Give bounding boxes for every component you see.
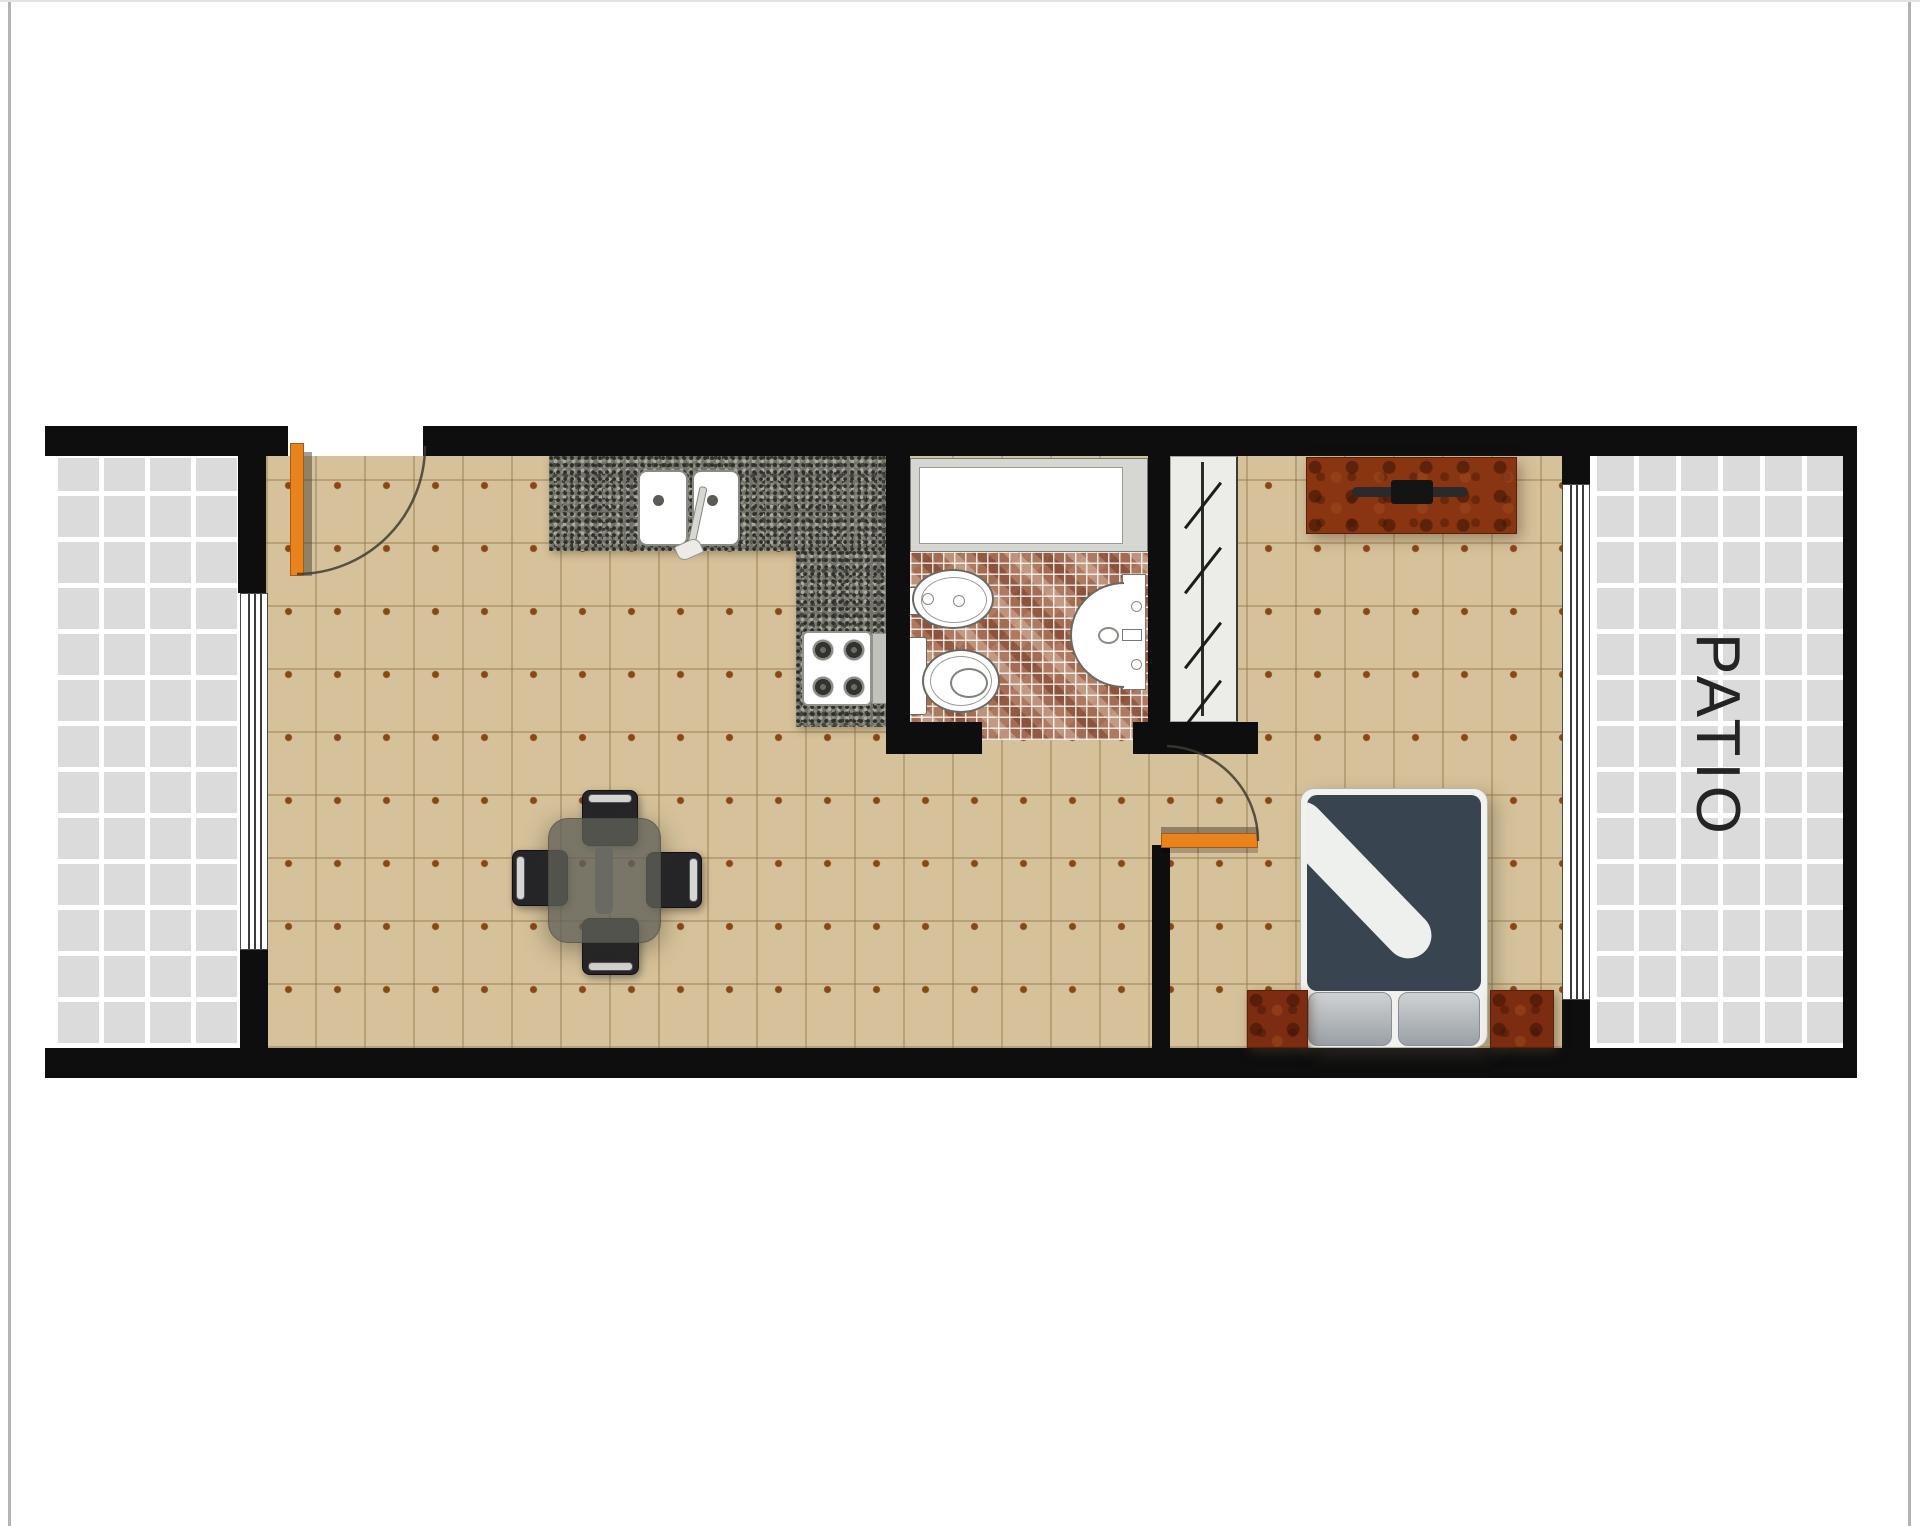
stove-burner bbox=[811, 638, 835, 662]
wall-sink-faucet bbox=[1122, 629, 1142, 641]
chair-back bbox=[516, 856, 525, 900]
stove-burner bbox=[811, 675, 835, 699]
bathroom-wall-left bbox=[886, 456, 910, 754]
bathroom-wall-bottom-left bbox=[886, 722, 982, 754]
page-edge-top bbox=[0, 0, 1920, 2]
pier-bedroom-window-bottom bbox=[1562, 1000, 1590, 1048]
patio-label-area: PATIO bbox=[1592, 456, 1843, 1016]
stove-burner bbox=[842, 638, 866, 662]
toilet-water bbox=[950, 668, 988, 698]
wall-sink-screw-top bbox=[1131, 601, 1142, 612]
pier-living-left-bottom bbox=[240, 950, 268, 1048]
chair-back bbox=[588, 962, 633, 971]
bed-sheet-fold bbox=[1307, 795, 1441, 968]
wall-top-main bbox=[423, 426, 1857, 456]
closet bbox=[1170, 456, 1238, 722]
wall-sink-screw-bottom bbox=[1131, 659, 1142, 670]
stove-burner bbox=[842, 675, 866, 699]
wall-top-left bbox=[45, 426, 288, 456]
bathroom-wall-bottom-right bbox=[1133, 722, 1258, 754]
entry-door bbox=[290, 443, 304, 576]
window-bedroom bbox=[1562, 484, 1590, 1000]
patio-label: PATIO bbox=[1682, 633, 1753, 840]
page-edge-right bbox=[1908, 0, 1911, 1526]
pier-living-left-top bbox=[238, 456, 266, 593]
pillow-right bbox=[1398, 992, 1480, 1046]
chair-back bbox=[588, 794, 632, 803]
pillow-left bbox=[1308, 992, 1392, 1046]
nightstand-right bbox=[1490, 990, 1554, 1048]
wall-bottom bbox=[45, 1048, 1857, 1078]
bedroom-door bbox=[1161, 833, 1258, 848]
pier-bedroom-window-top bbox=[1562, 456, 1590, 484]
window-living bbox=[240, 593, 268, 950]
page-edge-left bbox=[8, 0, 11, 1526]
chair-back bbox=[689, 858, 698, 902]
dresser-handle bbox=[1391, 480, 1433, 504]
entry-door-shadow bbox=[304, 452, 312, 576]
floor-plan-page: PATIO bbox=[0, 0, 1920, 1526]
sink-drain-left bbox=[653, 495, 664, 506]
bidet-tap bbox=[922, 593, 934, 605]
sink-drain-right bbox=[707, 495, 718, 506]
bidet-drain bbox=[953, 595, 965, 607]
nightstand-left bbox=[1247, 990, 1308, 1048]
bedroom-door-shadow-bottom bbox=[1161, 848, 1258, 853]
dining-table bbox=[548, 818, 661, 943]
kitchen-sink-basin-left bbox=[638, 470, 688, 546]
bathroom-wall-right bbox=[1148, 456, 1170, 722]
bathtub-basin bbox=[919, 467, 1123, 544]
patio-left-floor bbox=[53, 458, 237, 1048]
wall-right bbox=[1843, 426, 1857, 1048]
bedroom-partition-wall bbox=[1152, 845, 1170, 1048]
stove-control-panel bbox=[872, 633, 887, 704]
wall-sink-drain bbox=[1098, 627, 1119, 644]
bed-duvet bbox=[1307, 795, 1481, 991]
